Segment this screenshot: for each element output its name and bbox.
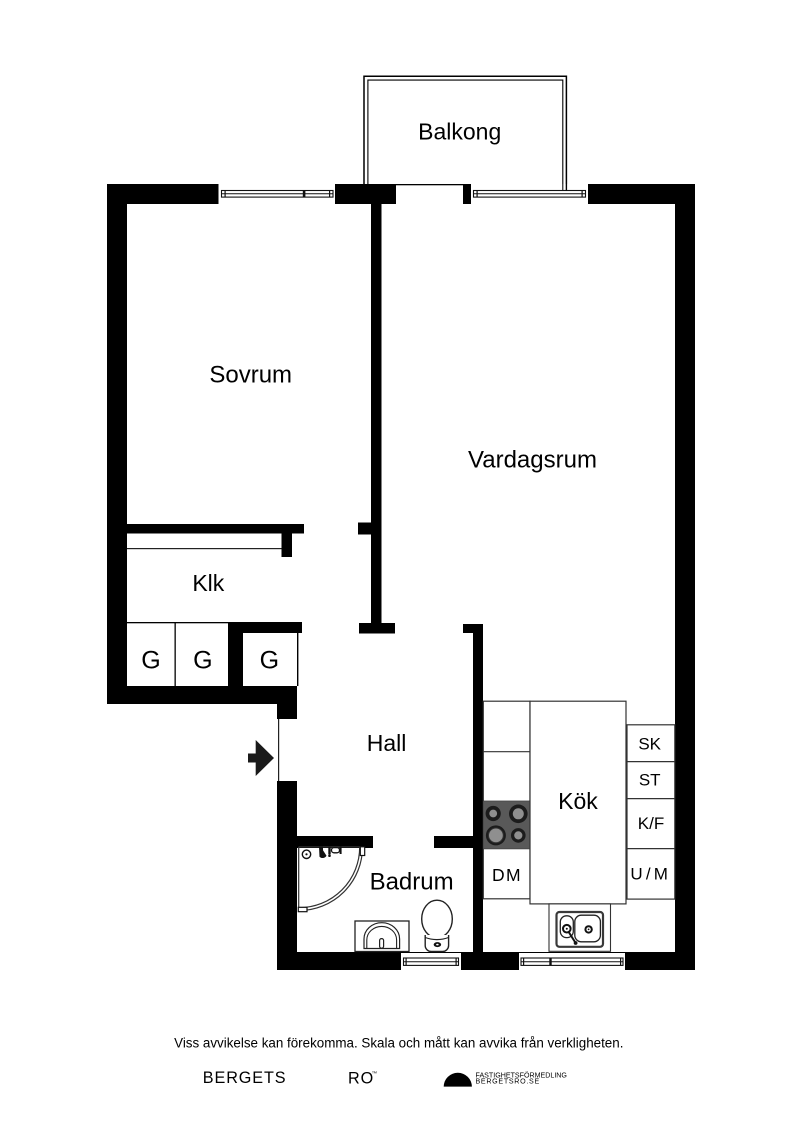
svg-text:™: ™	[372, 1071, 378, 1077]
svg-text:BERGETSRO.SE: BERGETSRO.SE	[476, 1078, 540, 1086]
svg-text:Badrum: Badrum	[370, 868, 454, 895]
svg-text:Klk: Klk	[192, 570, 224, 596]
svg-text:Viss avvikelse kan förekomma.: Viss avvikelse kan förekomma. Skala och …	[174, 1036, 623, 1051]
svg-text:Kök: Kök	[558, 788, 598, 814]
svg-text:K/F: K/F	[638, 814, 664, 833]
svg-text:Sovrum: Sovrum	[209, 361, 292, 388]
svg-text:RO: RO	[348, 1069, 374, 1087]
svg-text:ST: ST	[639, 771, 661, 790]
svg-text:G: G	[260, 647, 279, 675]
svg-text:BERGETS: BERGETS	[203, 1069, 287, 1087]
svg-text:DM: DM	[492, 865, 522, 885]
svg-text:Vardagsrum: Vardagsrum	[468, 446, 597, 473]
svg-text:G: G	[193, 647, 212, 675]
svg-text:G: G	[141, 647, 160, 675]
svg-text:SK: SK	[638, 735, 661, 754]
svg-text:Balkong: Balkong	[418, 118, 501, 144]
svg-text:U/M: U/M	[630, 864, 671, 883]
svg-text:Hall: Hall	[367, 730, 407, 756]
